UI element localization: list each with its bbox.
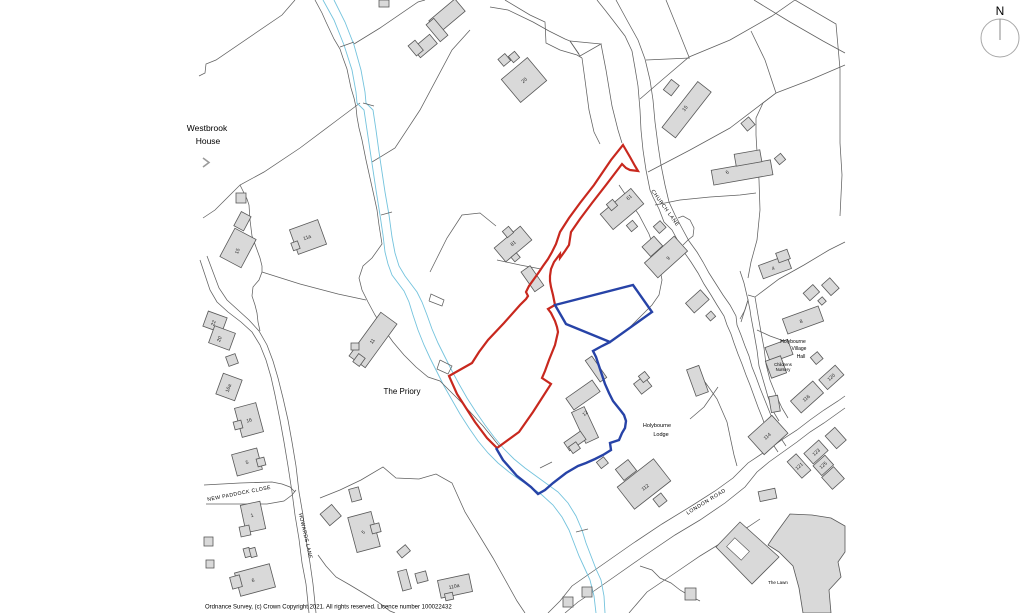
- svg-text:Nursery: Nursery: [776, 367, 792, 372]
- svg-text:Westbrook: Westbrook: [187, 123, 228, 133]
- svg-text:Holybourne: Holybourne: [780, 339, 806, 345]
- svg-text:N: N: [996, 4, 1005, 18]
- svg-text:Ordnance Survey, (c) Crown Cop: Ordnance Survey, (c) Crown Copyright 202…: [205, 605, 452, 611]
- svg-text:Village: Village: [792, 346, 807, 352]
- svg-text:The Lawn: The Lawn: [768, 580, 788, 585]
- svg-text:Hall: Hall: [797, 354, 806, 360]
- svg-text:Holybourne: Holybourne: [643, 423, 671, 429]
- svg-text:The Priory: The Priory: [384, 387, 421, 396]
- svg-text:Lodge: Lodge: [653, 432, 668, 438]
- svg-text:House: House: [196, 136, 221, 146]
